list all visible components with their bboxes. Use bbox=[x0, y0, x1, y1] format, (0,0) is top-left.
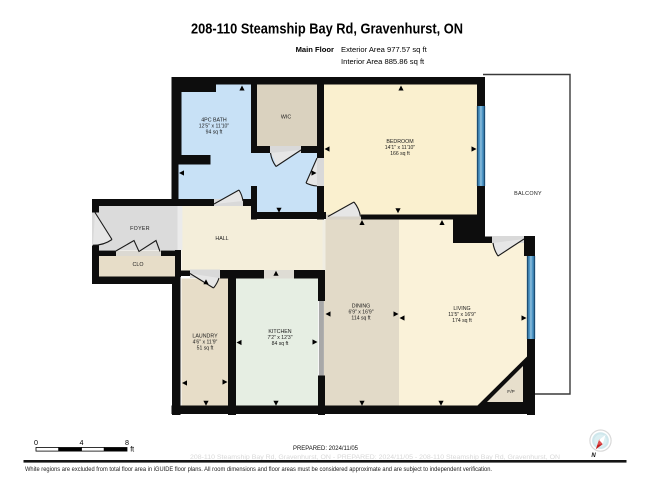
svg-text:208-110 Steamship Bay Rd, Grav: 208-110 Steamship Bay Rd, Gravenhurst, O… bbox=[191, 21, 463, 38]
svg-text:PREPARED: 2024/11/05: PREPARED: 2024/11/05 bbox=[293, 445, 358, 452]
svg-text:FOYER: FOYER bbox=[130, 226, 150, 232]
svg-text:166 sq ft: 166 sq ft bbox=[390, 151, 410, 157]
svg-text:4: 4 bbox=[80, 438, 84, 447]
svg-text:F/P: F/P bbox=[507, 389, 514, 395]
svg-text:0: 0 bbox=[34, 438, 38, 447]
svg-text:N: N bbox=[591, 453, 596, 459]
svg-text:174 sq ft: 174 sq ft bbox=[452, 318, 472, 324]
svg-text:94 sq ft: 94 sq ft bbox=[206, 130, 223, 136]
svg-text:CLO: CLO bbox=[133, 262, 144, 268]
svg-text:WIC: WIC bbox=[281, 115, 291, 121]
svg-text:Main Floor: Main Floor bbox=[296, 45, 334, 54]
svg-text:BALCONY: BALCONY bbox=[514, 191, 542, 197]
svg-text:White regions are excluded fro: White regions are excluded from total fl… bbox=[25, 466, 492, 473]
svg-text:84 sq ft: 84 sq ft bbox=[272, 341, 289, 347]
svg-text:Interior Area 885.86 sq ft: Interior Area 885.86 sq ft bbox=[341, 57, 425, 66]
svg-text:51 sq ft: 51 sq ft bbox=[197, 346, 214, 352]
svg-text:8: 8 bbox=[125, 438, 129, 447]
svg-text:Exterior Area 977.57 sq ft: Exterior Area 977.57 sq ft bbox=[341, 45, 428, 54]
svg-text:114 sq ft: 114 sq ft bbox=[351, 316, 371, 322]
svg-text:HALL: HALL bbox=[215, 236, 228, 242]
svg-text:ft: ft bbox=[130, 445, 134, 454]
